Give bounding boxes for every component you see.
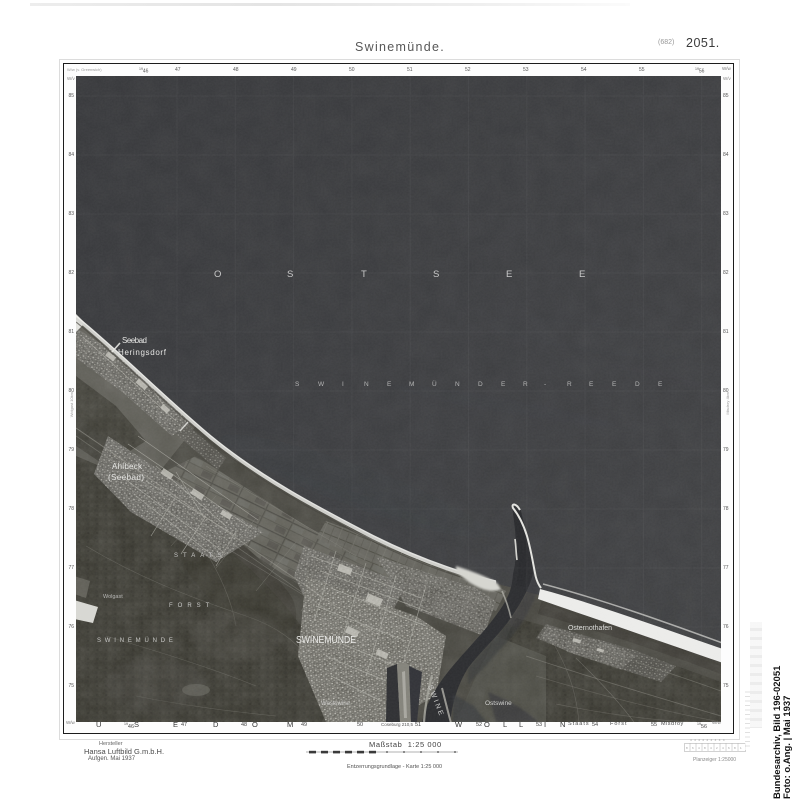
svg-text:SWINEMÜNDE: SWINEMÜNDE: [296, 634, 356, 646]
svg-text:8: 8: [704, 746, 706, 750]
svg-text:E: E: [589, 381, 594, 388]
svg-text:M: M: [409, 381, 414, 388]
svg-text:S: S: [433, 269, 439, 280]
svg-text:Westswine: Westswine: [321, 701, 351, 707]
svg-text:2: 2: [716, 746, 718, 750]
svg-text:1: 1: [740, 746, 742, 750]
svg-text:Seebad: Seebad: [122, 336, 147, 345]
svg-text:E: E: [387, 381, 392, 388]
svg-text:R: R: [567, 381, 572, 388]
svg-text:S: S: [287, 269, 293, 280]
svg-text:6: 6: [728, 746, 730, 750]
svg-text:8: 8: [734, 746, 736, 750]
svg-text:Heringsdorf: Heringsdorf: [118, 348, 167, 357]
svg-text:W: W: [318, 381, 325, 388]
svg-text:4: 4: [710, 746, 712, 750]
svg-text:(Seebad): (Seebad): [108, 473, 144, 482]
svg-text:4: 4: [722, 746, 724, 750]
svg-text:STAATS: STAATS: [174, 553, 226, 559]
svg-text:E: E: [579, 269, 585, 280]
svg-text:Osternothafen: Osternothafen: [568, 625, 612, 632]
svg-text:8: 8: [686, 746, 688, 750]
svg-text:6: 6: [692, 746, 694, 750]
svg-text:-: -: [544, 381, 546, 388]
svg-text:Ostswine: Ostswine: [485, 700, 512, 707]
svg-text:O: O: [214, 269, 221, 280]
svg-text:D: D: [478, 381, 483, 388]
svg-text:Ü: Ü: [432, 380, 437, 388]
svg-text:E: E: [612, 381, 617, 388]
svg-text:SWINEMÜNDE: SWINEMÜNDE: [97, 637, 177, 644]
svg-text:E: E: [501, 381, 506, 388]
svg-text:T: T: [361, 269, 367, 280]
svg-text:R: R: [523, 381, 528, 388]
svg-text:Wolgast: Wolgast: [103, 594, 123, 600]
svg-text:E: E: [506, 269, 512, 280]
svg-text:N: N: [455, 381, 460, 388]
svg-text:E: E: [658, 381, 663, 388]
svg-text:S: S: [295, 381, 300, 388]
svg-text:N: N: [364, 381, 369, 388]
svg-text:D: D: [635, 381, 640, 388]
svg-text:I: I: [342, 381, 344, 388]
svg-text:FORST: FORST: [169, 603, 214, 609]
svg-text:4: 4: [698, 746, 700, 750]
svg-text:Ahlbeck: Ahlbeck: [112, 462, 143, 471]
